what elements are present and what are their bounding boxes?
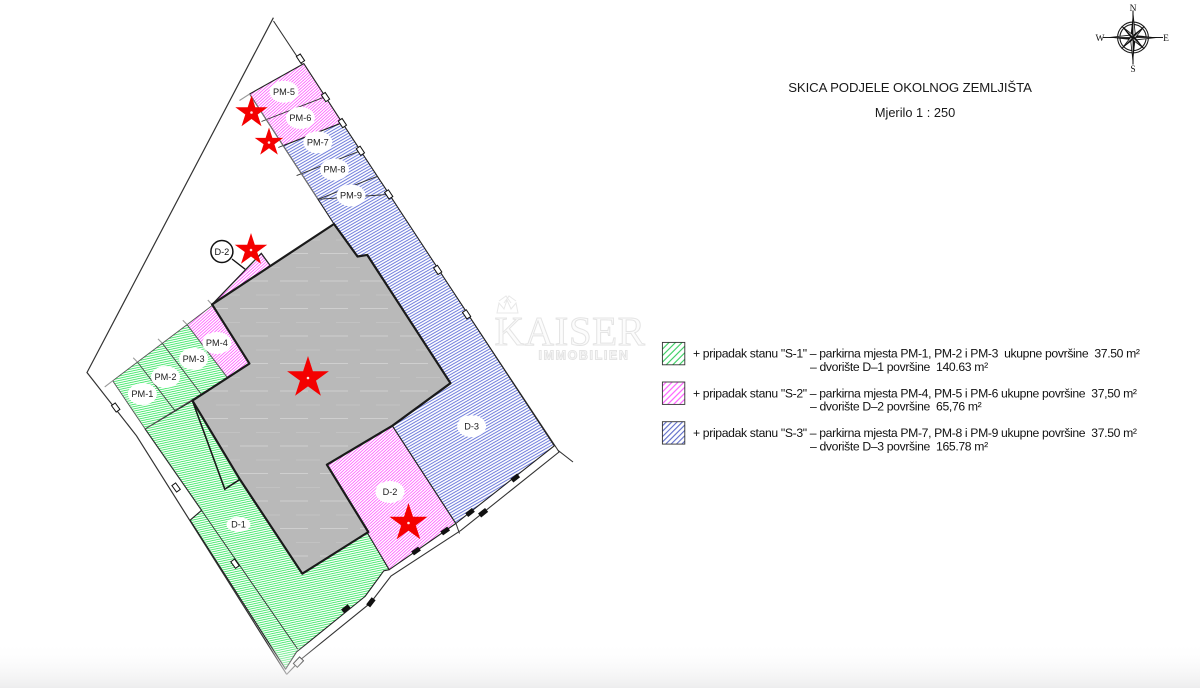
svg-text:Mjerilo 1 : 250: Mjerilo 1 : 250 <box>875 105 955 120</box>
svg-text:PM-5: PM-5 <box>273 87 295 97</box>
svg-text:PM-2: PM-2 <box>155 372 177 382</box>
svg-text:PM-9: PM-9 <box>340 191 362 201</box>
svg-text:E: E <box>1163 34 1169 44</box>
svg-text:W: W <box>1096 34 1105 44</box>
svg-text:– dvorište D–3 površine 165.7: – dvorište D–3 površine 165.78 m² <box>810 439 988 453</box>
svg-text:N: N <box>1130 4 1137 14</box>
svg-text:– dvorište D–2 površine 65,76: – dvorište D–2 površine 65,76 m² <box>810 400 982 414</box>
svg-text:+ pripadak stanu "S-2" – parki: + pripadak stanu "S-2" – parkirna mjesta… <box>693 386 1137 400</box>
svg-text:+ pripadak stanu "S-1" – parki: + pripadak stanu "S-1" – parkirna mjesta… <box>693 347 1140 361</box>
svg-text:D-2: D-2 <box>383 487 398 497</box>
svg-text:PM-3: PM-3 <box>183 354 205 364</box>
svg-text:SKICA PODJELE OKOLNOG ZEMLJIŠT: SKICA PODJELE OKOLNOG ZEMLJIŠTA <box>788 80 1032 95</box>
svg-text:D-1: D-1 <box>231 520 246 530</box>
svg-text:PM-6: PM-6 <box>289 113 311 123</box>
svg-text:PM-7: PM-7 <box>307 138 329 148</box>
svg-text:PM-8: PM-8 <box>324 165 346 175</box>
svg-text:PM-1: PM-1 <box>131 389 153 399</box>
svg-text:– dvorište D–1 površine 140.6: – dvorište D–1 površine 140.63 m² <box>810 360 988 374</box>
svg-text:S: S <box>1130 65 1135 75</box>
svg-text:D-3: D-3 <box>464 421 479 431</box>
svg-text:IMMOBILIEN: IMMOBILIEN <box>539 349 630 363</box>
svg-text:KAISER: KAISER <box>494 308 645 354</box>
svg-text:D-2: D-2 <box>214 247 229 257</box>
svg-text:+ pripadak stanu "S-3" – parki: + pripadak stanu "S-3" – parkirna mjesta… <box>693 426 1137 440</box>
svg-text:PM-4: PM-4 <box>206 338 228 348</box>
